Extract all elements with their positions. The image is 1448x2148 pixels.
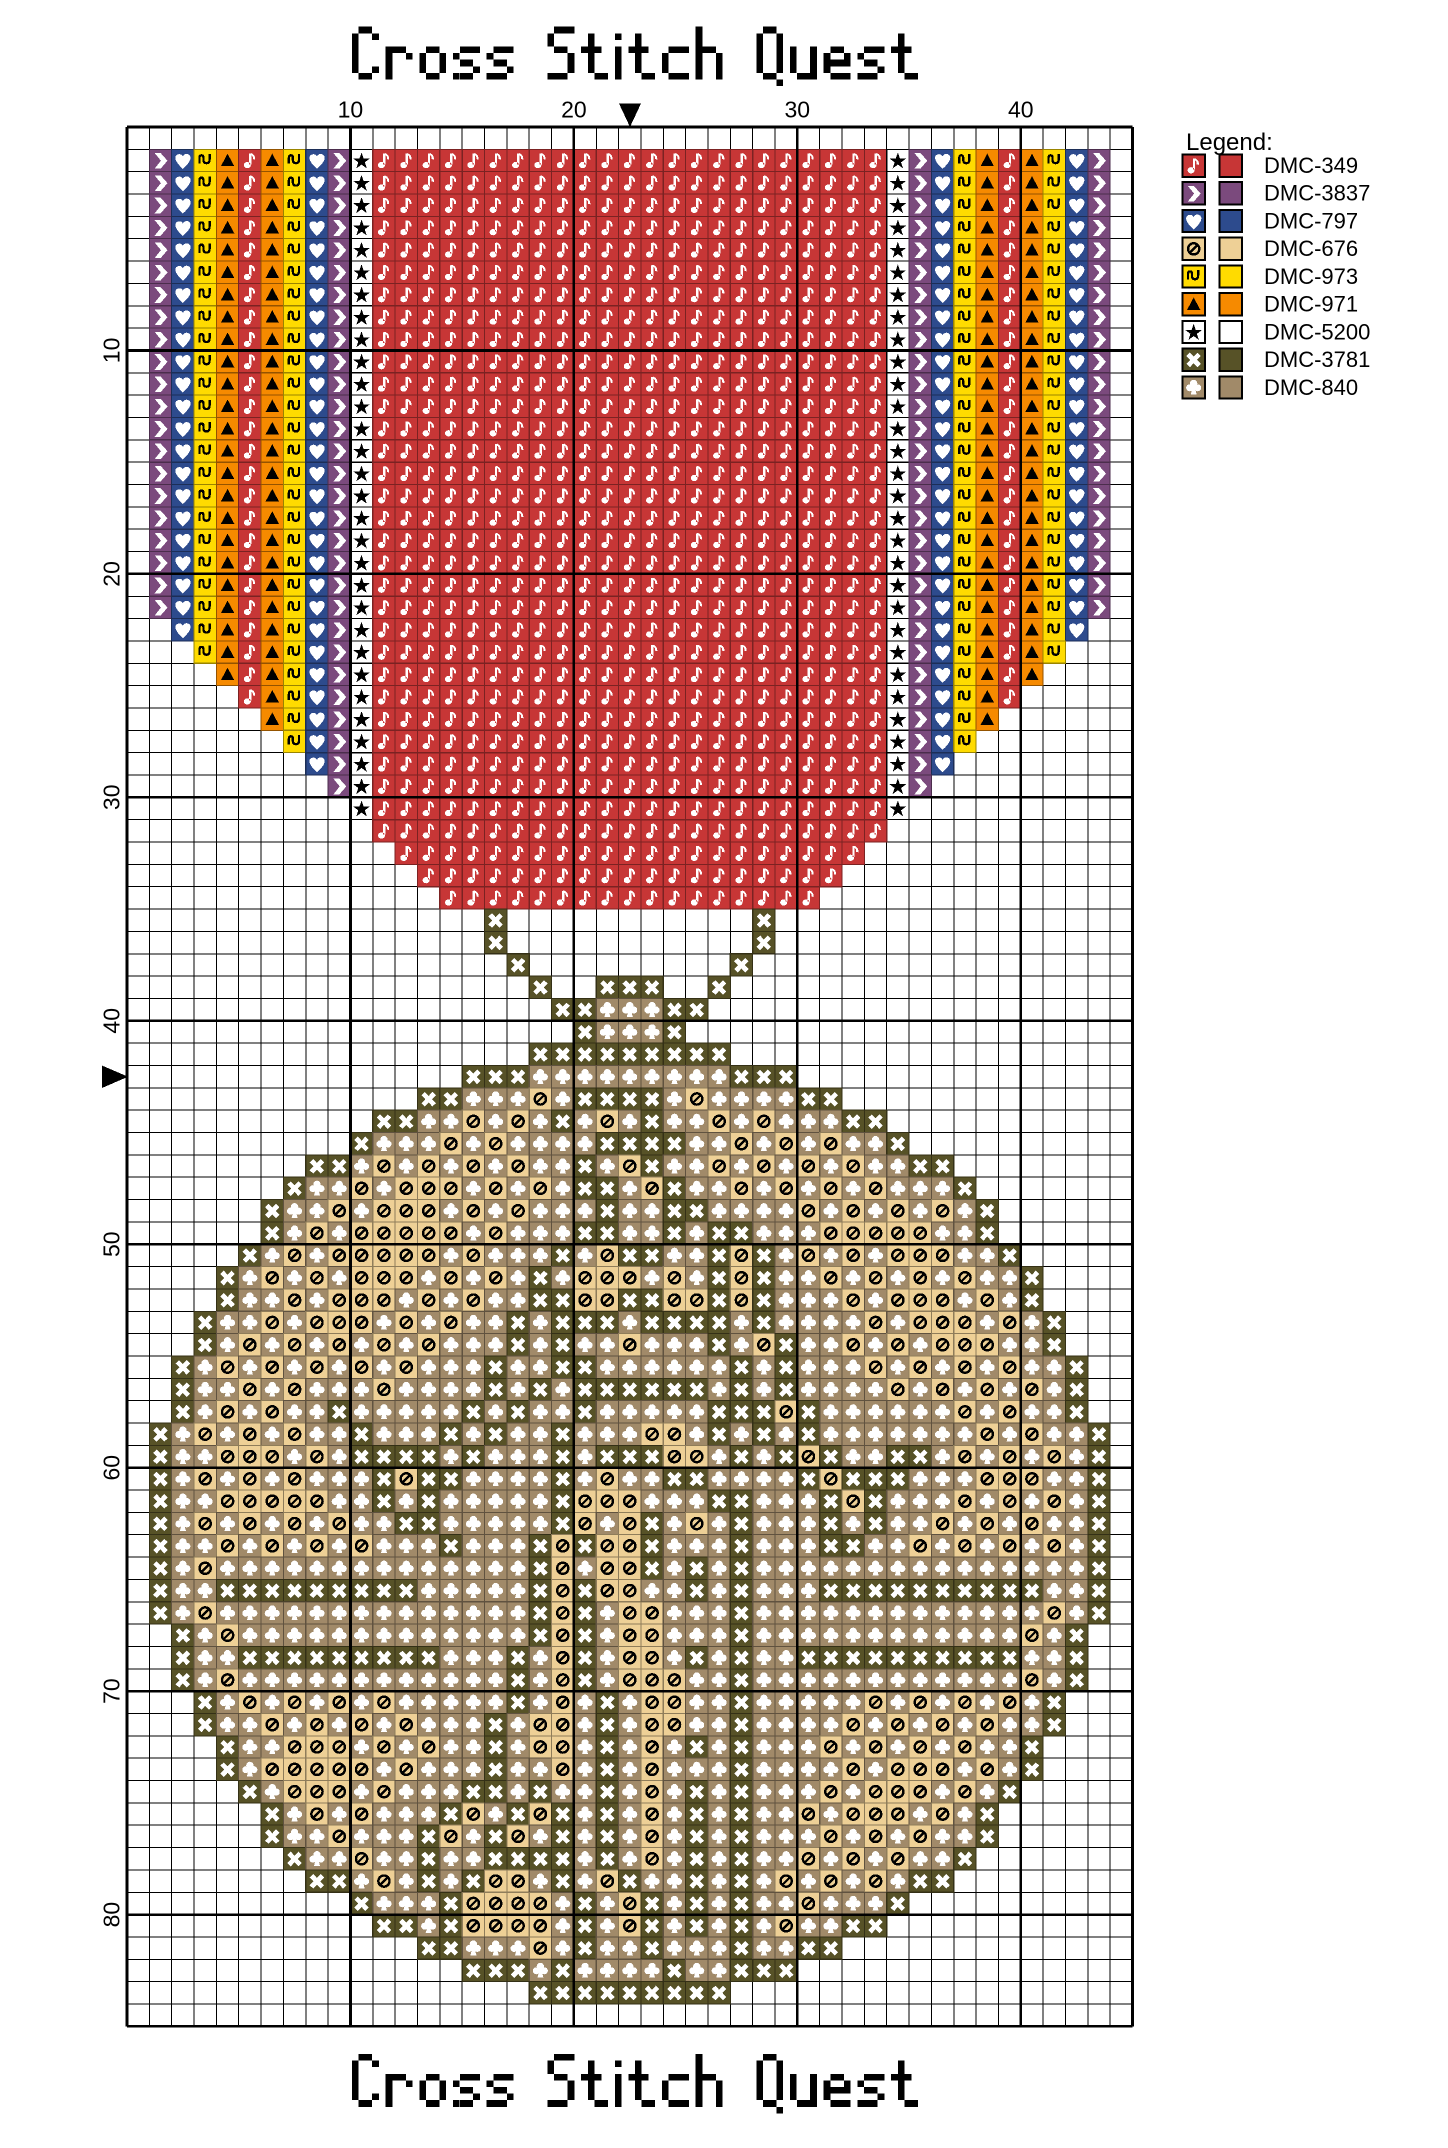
svg-text:20: 20 (561, 97, 587, 123)
svg-text:30: 30 (99, 785, 125, 811)
svg-text:DMC-349: DMC-349 (1264, 153, 1358, 178)
svg-text:80: 80 (99, 1902, 125, 1928)
svg-text:DMC-971: DMC-971 (1264, 292, 1358, 317)
svg-text:50: 50 (99, 1231, 125, 1257)
svg-text:40: 40 (1008, 97, 1034, 123)
svg-text:10: 10 (338, 97, 364, 123)
svg-text:Legend:: Legend: (1186, 129, 1273, 156)
svg-text:40: 40 (99, 1008, 125, 1034)
svg-text:10: 10 (99, 338, 125, 364)
svg-text:DMC-797: DMC-797 (1264, 208, 1358, 233)
svg-text:DMC-840: DMC-840 (1264, 375, 1358, 400)
svg-text:DMC-676: DMC-676 (1264, 236, 1358, 261)
svg-text:70: 70 (99, 1678, 125, 1704)
svg-text:DMC-3837: DMC-3837 (1264, 181, 1370, 206)
svg-text:DMC-973: DMC-973 (1264, 264, 1358, 289)
svg-text:DMC-5200: DMC-5200 (1264, 319, 1370, 344)
svg-text:30: 30 (785, 97, 811, 123)
svg-text:DMC-3781: DMC-3781 (1264, 347, 1370, 372)
svg-text:60: 60 (99, 1455, 125, 1481)
svg-text:20: 20 (99, 561, 125, 587)
